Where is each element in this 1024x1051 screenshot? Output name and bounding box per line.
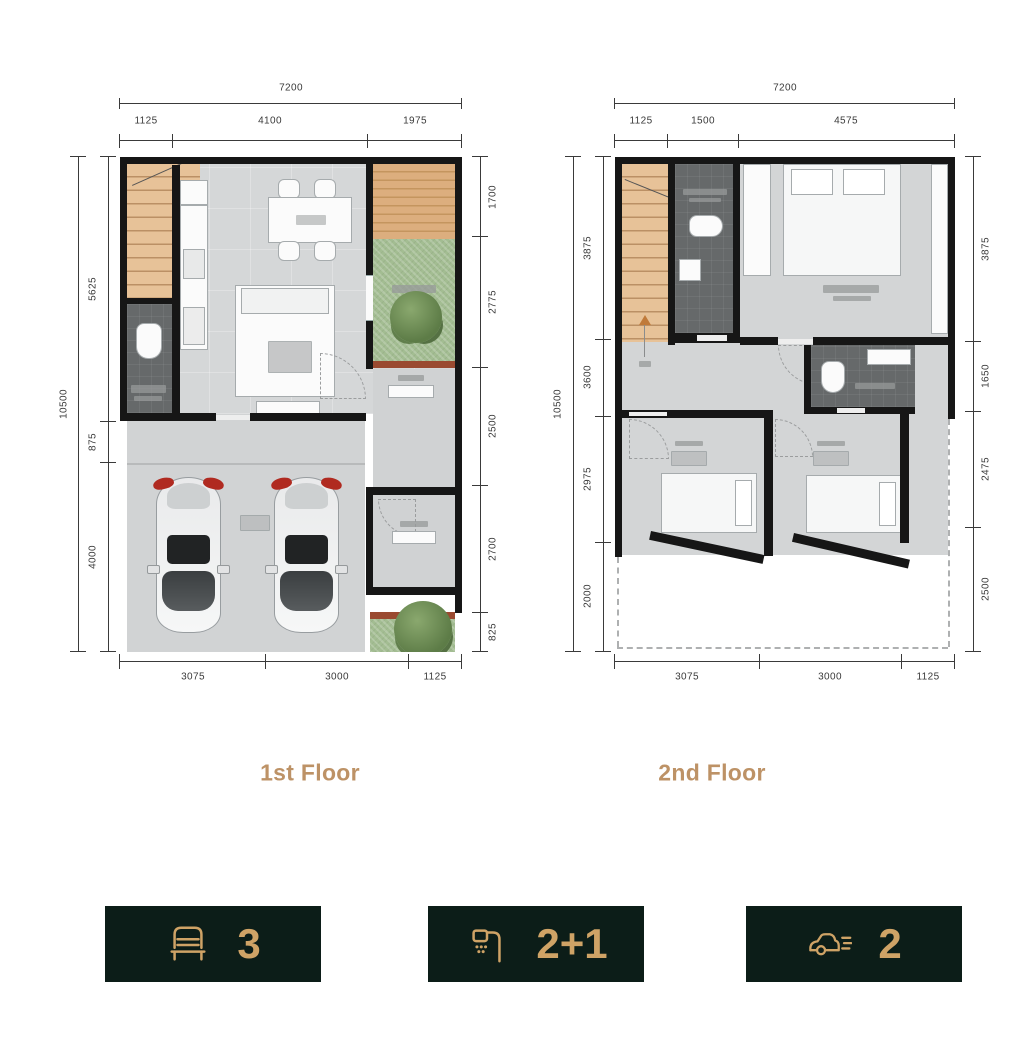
sofa	[241, 288, 329, 314]
wall	[813, 337, 948, 345]
dim-line	[615, 661, 955, 662]
dim-tick	[472, 367, 488, 368]
dim-tick	[954, 98, 955, 109]
dim-tick	[119, 654, 120, 669]
dim-label: 1125	[423, 672, 446, 683]
dim-label: 2500	[981, 577, 992, 601]
dim-tick	[965, 527, 981, 528]
room-label-smudge	[689, 198, 721, 202]
dim-tick	[461, 134, 462, 148]
wardrobe	[743, 164, 771, 276]
dim-tick	[100, 462, 116, 463]
dim-tick	[100, 421, 116, 422]
dim-label: 2700	[488, 537, 499, 561]
dim-tick	[667, 134, 668, 148]
wall	[615, 157, 955, 164]
dim-line	[603, 157, 604, 652]
dim-tick	[614, 654, 615, 669]
shower-icon	[464, 921, 510, 967]
wall	[250, 413, 366, 421]
wall	[366, 587, 462, 595]
badge-carports: 2	[746, 906, 962, 982]
car-icon	[806, 921, 852, 967]
door-sill	[697, 335, 727, 341]
car-windshield	[162, 571, 215, 611]
dim-tick	[965, 156, 981, 157]
car-mirror	[335, 565, 348, 574]
void-dashed-line	[617, 647, 948, 649]
desk	[813, 451, 849, 466]
floor-plan-1st	[120, 157, 462, 652]
dim-label: 7200	[773, 83, 797, 94]
wall	[740, 337, 778, 345]
dim-label: 2000	[583, 584, 594, 608]
badge-value: 2+1	[536, 920, 607, 968]
dim-line	[615, 140, 955, 141]
toilet	[136, 323, 162, 359]
dim-label: 1500	[691, 116, 715, 127]
pillow	[879, 482, 896, 526]
door-sill	[837, 408, 865, 413]
dim-label: 3075	[181, 672, 205, 683]
dim-label: 2475	[981, 457, 992, 481]
wardrobe	[931, 164, 948, 334]
dim-tick	[965, 341, 981, 342]
dim-tick	[70, 651, 86, 652]
dim-label: 1650	[981, 364, 992, 388]
window	[629, 412, 667, 416]
dim-line	[108, 157, 109, 652]
room-label-smudge	[855, 383, 895, 389]
dim-tick	[472, 651, 488, 652]
dim-tick	[565, 651, 581, 652]
dim-tick	[408, 654, 409, 669]
dim-label: 7200	[279, 83, 303, 94]
dim-tick	[614, 134, 615, 148]
dim-label: 3000	[325, 672, 349, 683]
planter-strip	[373, 361, 455, 368]
pillow	[791, 169, 833, 195]
dim-tick	[461, 98, 462, 109]
dim-label: 5625	[88, 277, 99, 301]
floorplan-page: 7200 1125 4100 1975 3075 3000 1125 10500…	[0, 0, 1024, 1051]
void-dashed-line	[617, 557, 619, 647]
dim-label: 3875	[981, 237, 992, 261]
room-label-smudge	[823, 285, 879, 293]
room-label-smudge	[675, 441, 703, 446]
room-label-smudge	[398, 375, 424, 381]
dim-tick	[595, 651, 611, 652]
dim-label: 825	[488, 623, 499, 641]
window	[366, 275, 373, 321]
wall	[615, 157, 622, 557]
dim-tick	[954, 654, 955, 669]
carport-marker	[240, 515, 270, 531]
dim-tick	[595, 542, 611, 543]
pillow	[735, 480, 752, 526]
wall	[172, 165, 180, 413]
dim-tick	[901, 654, 902, 669]
car-sunroof	[285, 535, 328, 564]
dim-label: 3600	[583, 365, 594, 389]
dim-tick	[965, 651, 981, 652]
room-label-smudge	[817, 441, 845, 446]
dim-tick	[595, 156, 611, 157]
badge-bathrooms: 2+1	[428, 906, 644, 982]
dim-tick	[738, 134, 739, 148]
wall	[948, 157, 955, 419]
dim-tick	[100, 651, 116, 652]
dim-label: 1975	[403, 116, 427, 127]
tree	[390, 291, 442, 343]
wall	[120, 157, 127, 420]
floor1-title: 1st Floor	[260, 760, 360, 787]
dim-tick	[472, 485, 488, 486]
dim-tick	[614, 98, 615, 109]
car-mirror	[147, 565, 160, 574]
dim-tick	[759, 654, 760, 669]
dim-label: 2500	[488, 414, 499, 438]
dim-tick	[265, 654, 266, 669]
dim-line	[78, 157, 79, 652]
dim-tick	[565, 156, 581, 157]
dim-label: 10500	[59, 389, 70, 419]
wall	[764, 410, 773, 556]
dim-line	[480, 157, 481, 652]
wall	[900, 413, 909, 543]
wall	[804, 345, 811, 414]
bed-icon	[165, 921, 211, 967]
room-label-smudge	[639, 361, 651, 367]
dim-tick	[965, 411, 981, 412]
badge-bedrooms: 3	[105, 906, 321, 982]
toilet	[821, 361, 845, 393]
dim-label: 1125	[629, 116, 652, 127]
dim-tick	[954, 134, 955, 148]
dining-chair	[278, 241, 300, 261]
wall	[668, 164, 675, 345]
wall	[366, 157, 373, 369]
room-label-smudge	[833, 296, 871, 301]
dim-tick	[367, 134, 368, 148]
dim-label: 1125	[134, 116, 157, 127]
stairs-arrow-line	[644, 325, 645, 357]
dim-label: 2775	[488, 290, 499, 314]
wall	[127, 298, 172, 304]
dim-label: 1700	[488, 185, 499, 209]
dim-tick	[472, 156, 488, 157]
wall	[455, 157, 462, 613]
stairs-up-arrow	[639, 315, 651, 325]
dim-label: 4100	[258, 116, 282, 127]
wall	[366, 495, 373, 595]
wall	[366, 487, 462, 495]
dim-tick	[70, 156, 86, 157]
kitchen-sink	[183, 249, 205, 279]
table-decor	[296, 215, 326, 225]
floor-plan-2nd	[615, 157, 955, 652]
dim-line	[120, 661, 462, 662]
dim-tick	[172, 134, 173, 148]
dim-line	[973, 157, 974, 652]
floor2-title: 2nd Floor	[658, 760, 765, 787]
dim-label: 3000	[818, 672, 842, 683]
bench	[388, 385, 434, 398]
badge-value: 3	[237, 920, 260, 968]
car-mirror	[265, 565, 278, 574]
dim-tick	[595, 339, 611, 340]
dim-tick	[461, 654, 462, 669]
dim-line	[615, 103, 955, 104]
room-label-smudge	[131, 385, 166, 393]
room-label-smudge	[400, 521, 428, 527]
dim-tick	[595, 416, 611, 417]
dining-chair	[314, 179, 336, 199]
dim-label: 3875	[583, 236, 594, 260]
car-rear-window	[285, 483, 328, 509]
kitchen-stove	[183, 307, 205, 345]
dim-tick	[119, 134, 120, 148]
car-sunroof	[167, 535, 210, 564]
desk	[671, 451, 707, 466]
car-rear-window	[167, 483, 210, 509]
vanity	[867, 349, 911, 365]
car-top-view	[150, 475, 227, 637]
entry-door-sill	[216, 415, 250, 420]
sink	[679, 259, 701, 281]
dim-label: 4575	[834, 116, 858, 127]
wood-deck	[373, 164, 455, 239]
car-top-view	[268, 475, 345, 637]
room-label-smudge	[134, 396, 162, 401]
wall	[733, 164, 740, 343]
car-mirror	[217, 565, 230, 574]
dim-line	[573, 157, 574, 652]
shoe-bench	[392, 531, 436, 544]
room-label-smudge	[683, 189, 727, 195]
pillow	[843, 169, 885, 195]
void-dashed-line	[948, 419, 950, 647]
car-windshield	[280, 571, 333, 611]
toilet	[689, 215, 723, 237]
dim-label: 4000	[88, 545, 99, 569]
kitchen-cabinet	[180, 180, 208, 205]
dim-label: 3075	[675, 672, 699, 683]
door-sill	[778, 339, 813, 344]
wall	[120, 413, 216, 421]
badge-value: 2	[878, 920, 901, 968]
dim-label: 1125	[916, 672, 939, 683]
coffee-table	[268, 341, 312, 373]
wall	[120, 157, 462, 164]
dim-label: 2975	[583, 467, 594, 491]
carport-line	[127, 463, 365, 465]
dim-tick	[472, 612, 488, 613]
tree	[394, 601, 452, 652]
dining-chair	[278, 179, 300, 199]
dim-tick	[119, 98, 120, 109]
dim-label: 875	[88, 433, 99, 451]
dim-tick	[472, 236, 488, 237]
dining-chair	[314, 241, 336, 261]
dim-label: 10500	[553, 389, 564, 419]
dim-line	[120, 103, 462, 104]
dim-tick	[100, 156, 116, 157]
